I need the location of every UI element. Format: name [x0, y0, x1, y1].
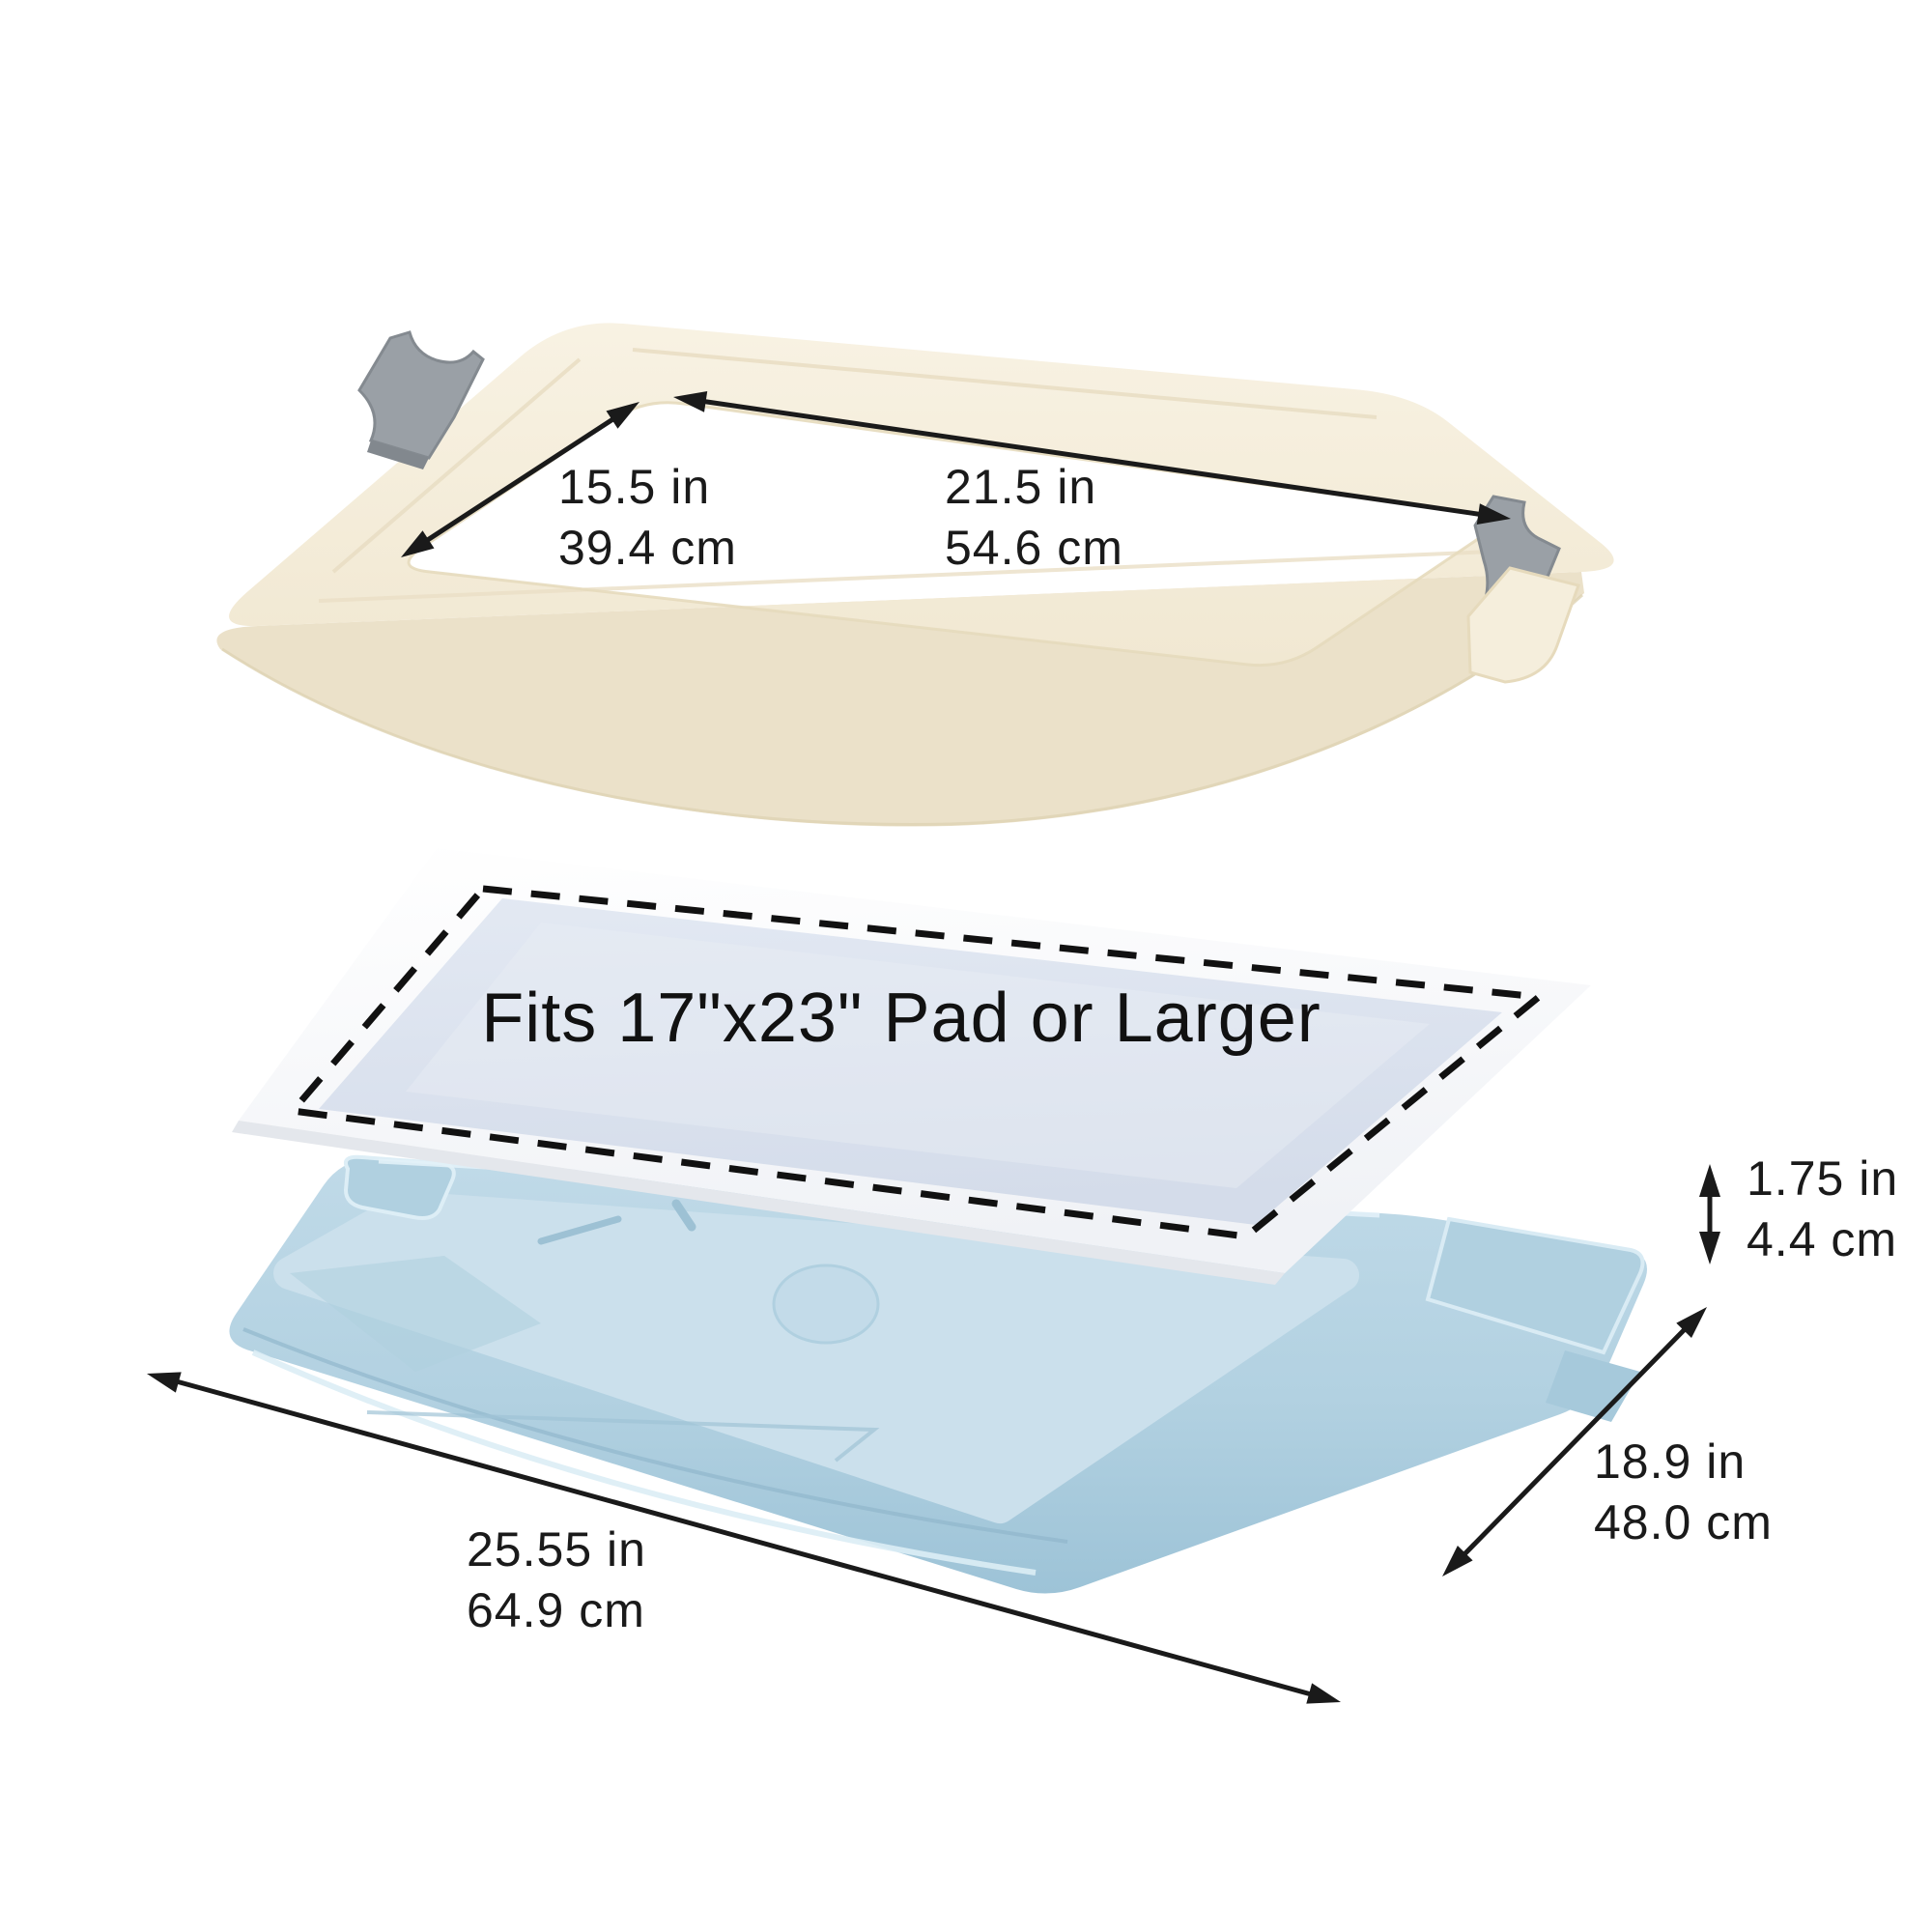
opening-length-inches: 21.5 in: [945, 460, 1096, 514]
tray-length-inches: 25.55 in: [467, 1522, 646, 1577]
arrow-tray-height: [1699, 1164, 1720, 1264]
label-tray-length: 25.55 in 64.9 cm: [467, 1520, 646, 1641]
pad-holder-frame: [216, 323, 1613, 826]
label-tray-height: 1.75 in 4.4 cm: [1747, 1149, 1898, 1270]
product-dimension-diagram: 15.5 in 39.4 cm 21.5 in 54.6 cm Fits 17"…: [0, 0, 1932, 1932]
label-tray-depth: 18.9 in 48.0 cm: [1594, 1432, 1773, 1553]
label-opening-length: 21.5 in 54.6 cm: [945, 457, 1123, 579]
label-opening-width: 15.5 in 39.4 cm: [558, 457, 737, 579]
tray-dimple: [774, 1265, 878, 1343]
tray-length-cm: 64.9 cm: [467, 1583, 645, 1637]
tray-height-inches: 1.75 in: [1747, 1151, 1898, 1206]
product-artwork: [0, 0, 1932, 1932]
tray-depth-inches: 18.9 in: [1594, 1435, 1746, 1489]
opening-width-inches: 15.5 in: [558, 460, 710, 514]
pad-size-note: Fits 17"x23" Pad or Larger: [471, 978, 1331, 1059]
tray-height-cm: 4.4 cm: [1747, 1212, 1897, 1266]
opening-length-cm: 54.6 cm: [945, 521, 1123, 575]
opening-width-cm: 39.4 cm: [558, 521, 737, 575]
tray-depth-cm: 48.0 cm: [1594, 1495, 1773, 1549]
